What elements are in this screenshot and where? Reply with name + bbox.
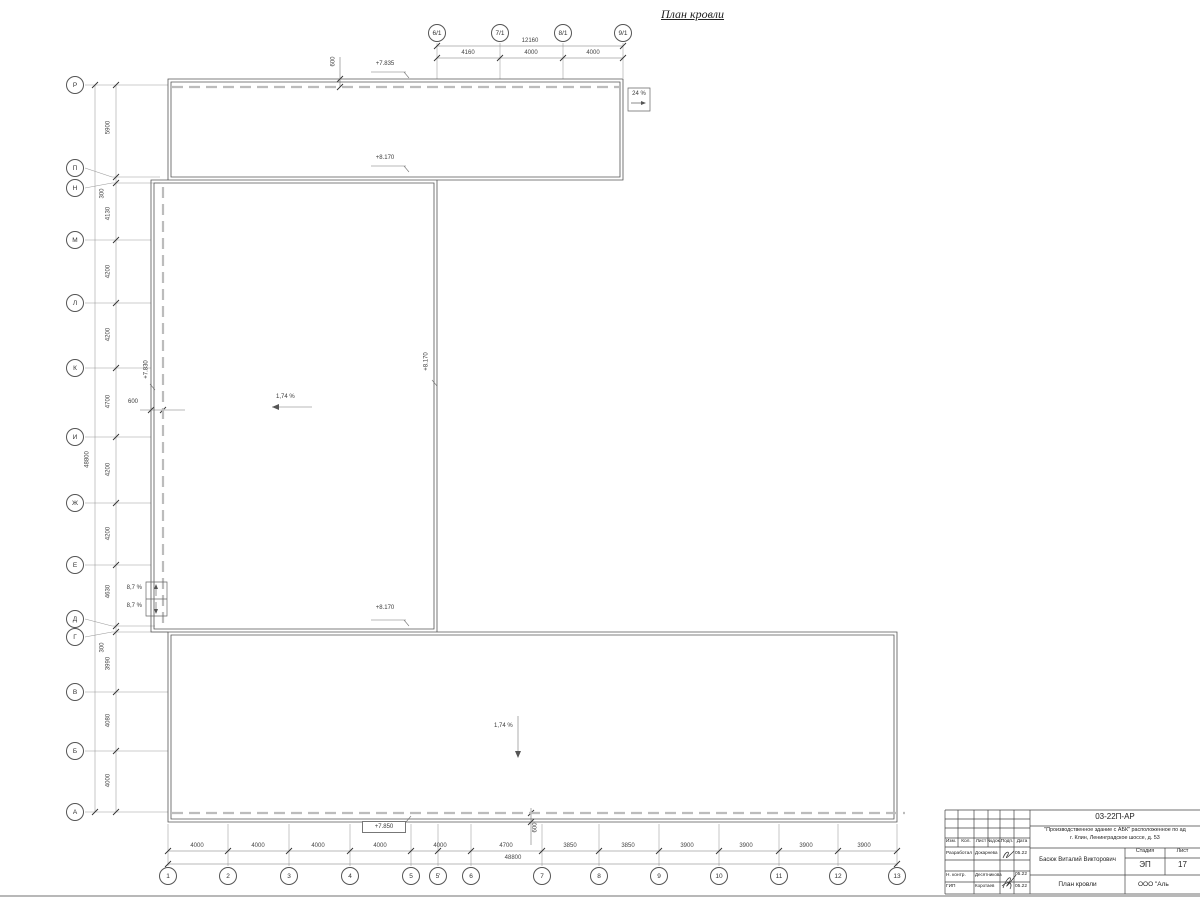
dimension-lines: [140, 46, 897, 864]
dim-left-seg: 4200: [106, 456, 113, 484]
dim-left-seg: 4200: [106, 258, 113, 286]
page-title: План кровли: [630, 7, 755, 22]
axis-bubble-left-p: П: [66, 159, 84, 177]
axis-bubble-bottom-5: 5: [402, 867, 420, 885]
titleblock-col-list: Лист: [974, 839, 988, 844]
dim-top-total: 12160: [505, 38, 555, 45]
slope-label-ramp: 24 %: [629, 91, 649, 98]
titleblock-date-gip: 05.22: [1015, 884, 1027, 889]
dim-bottom-seg: 4000: [180, 843, 214, 850]
titleblock-name-gip: Коротаев: [975, 884, 994, 889]
dim-left-seg: 4200: [106, 520, 113, 548]
axis-bubble-bottom-3: 3: [280, 867, 298, 885]
dim-eave-offset-top: 600: [331, 52, 338, 72]
dim-bottom-seg: 3900: [670, 843, 704, 850]
axis-bubble-left-l: Л: [66, 294, 84, 312]
axis-bubble-top-1: 6/1: [428, 24, 446, 42]
slope-arrowhead-mid: [272, 404, 279, 410]
slope-label-bottom: 1,74 %: [494, 723, 513, 730]
dim-bottom-seg: 4700: [489, 843, 523, 850]
dim-bottom-total: 48800: [495, 855, 531, 862]
titleblock-col-podp: Подп.: [1000, 839, 1014, 844]
elevation-label-left: +7.830: [144, 353, 151, 387]
titleblock-role-developer: Разработал: [946, 851, 972, 856]
axis-bubble-bottom-9: 9: [650, 867, 668, 885]
eave-offset-label-mid: 600: [128, 399, 138, 406]
side-slope-down-arrow: [154, 609, 158, 614]
titleblock-col-izm: Изм.: [943, 839, 959, 844]
plan-drawing: [0, 0, 1200, 900]
dimension-ticks: [92, 43, 900, 867]
titleblock-date-ncontr: 05.22: [1015, 872, 1027, 877]
dim-left-seg: 4080: [106, 707, 113, 735]
dim-left-seg: 3990: [106, 650, 113, 678]
axis-bubble-left-zh: Ж: [66, 494, 84, 512]
dim-left-total: 48800: [85, 445, 92, 475]
dim-top-seg: 4000: [511, 50, 551, 57]
axis-bubble-left-n: Н: [66, 179, 84, 197]
ramp-arrowhead: [641, 101, 646, 105]
dim-bottom-seg: 3850: [611, 843, 645, 850]
axis-bubble-bottom-11: 11: [770, 867, 788, 885]
slope-label-side-down: 8,7 %: [120, 603, 142, 610]
hidden-wall-dashed: [163, 87, 905, 813]
grid-lines: [85, 43, 897, 866]
dim-bottom-seg: 3850: [553, 843, 587, 850]
dim-bottom-seg: 3900: [729, 843, 763, 850]
titleblock-doc-number: 03-22П-АР: [1030, 813, 1200, 822]
axis-bubble-left-g: Г: [66, 628, 84, 646]
dim-bottom-seg: 4000: [301, 843, 335, 850]
dim-bottom-seg: 4000: [241, 843, 275, 850]
elevation-label-ridge: +8.170: [365, 155, 405, 162]
axis-bubble-left-i: И: [66, 428, 84, 446]
dim-bottom-seg: 3900: [847, 843, 881, 850]
titleblock-col-ndok: №док.: [987, 839, 1001, 844]
axis-bubble-bottom-4: 4: [341, 867, 359, 885]
dim-bottom-seg: 3900: [789, 843, 823, 850]
dim-left-seg: 4000: [106, 767, 113, 795]
axis-bubble-left-e: Е: [66, 556, 84, 574]
roof-plan-sheet: План кровли 6/1 7/1 8/1 9/1 12160 4160 4…: [0, 0, 1200, 900]
slope-label-side-up: 8,7 %: [120, 585, 142, 592]
dim-left-seg: 4200: [106, 321, 113, 349]
titleblock-role-gip: ГИП: [946, 884, 956, 889]
dim-left-seg: 5900: [106, 114, 113, 142]
axis-bubble-left-m: М: [66, 231, 84, 249]
dim-bottom-seg: 4000: [363, 843, 397, 850]
titleblock-drawing-name: План кровли: [1030, 881, 1125, 888]
axis-bubble-bottom-2: 2: [219, 867, 237, 885]
axis-bubble-bottom-8: 8: [590, 867, 608, 885]
titleblock-name-developer: Докарнева: [975, 851, 998, 856]
axis-bubble-left-b: Б: [66, 742, 84, 760]
titleblock-sheet-label: Лист: [1165, 849, 1200, 855]
dim-left-seg: 4700: [106, 388, 113, 416]
axis-bubble-left-d: Д: [66, 610, 84, 628]
slope-arrowhead-bottom: [515, 751, 521, 758]
titleblock-role-ncontr: Н. контр.: [946, 873, 966, 878]
titleblock-col-kol: Кол.: [958, 839, 974, 844]
dim-top-seg: 4000: [573, 50, 613, 57]
dim-top-seg: 4160: [448, 50, 488, 57]
axis-bubble-bottom-12: 12: [829, 867, 847, 885]
axis-bubble-bottom-7: 7: [533, 867, 551, 885]
roof-outlines: [151, 79, 897, 822]
axis-bubble-left-k: К: [66, 359, 84, 377]
titleblock-sheet-value: 17: [1165, 861, 1200, 870]
titleblock-project-line2: г. Клин, Ленинградское шоссе, д. 53: [1032, 836, 1198, 842]
elevation-label-top: +7.835: [365, 61, 405, 68]
dim-eave-offset-bottom: 600: [533, 818, 540, 838]
titleblock-project-line1: "Производственное здание с АБК" располож…: [1032, 828, 1198, 834]
elevation-label-lower-ridge: +8.170: [365, 605, 405, 612]
titleblock-date-developer: 05.22: [1015, 851, 1027, 856]
axis-bubble-top-3: 8/1: [554, 24, 572, 42]
titleblock-name-ncontr: Десятникова: [975, 873, 1002, 878]
titleblock-stage-label: Стадия: [1125, 849, 1165, 855]
axis-bubble-bottom-5a: 5': [429, 867, 447, 885]
axis-bubble-bottom-10: 10: [710, 867, 728, 885]
axis-bubble-bottom-1: 1: [159, 867, 177, 885]
dim-left-seg: 4630: [106, 578, 113, 606]
titleblock-stage-value: ЭП: [1125, 861, 1165, 870]
axis-bubble-bottom-13: 13: [888, 867, 906, 885]
axis-bubble-left-v: В: [66, 683, 84, 701]
axis-bubble-bottom-6: 6: [462, 867, 480, 885]
dim-bottom-seg: 4000: [423, 843, 457, 850]
slope-label-mid: 1,74 %: [276, 394, 295, 401]
axis-bubble-top-4: 9/1: [614, 24, 632, 42]
axis-bubble-left-r: Р: [66, 76, 84, 94]
titleblock-col-data: Дата: [1014, 839, 1030, 844]
titleblock-company: ООО "Аль: [1138, 881, 1169, 888]
side-slope-up-arrow: [154, 584, 158, 589]
axis-bubble-left-a: А: [66, 803, 84, 821]
elevation-label-right: +8.170: [424, 345, 431, 379]
elevation-label-bottom: +7.850: [362, 821, 406, 833]
dim-left-seg: 4130: [106, 200, 113, 228]
titleblock-designer-name: Басюк Виталий Викторович: [1030, 857, 1125, 864]
